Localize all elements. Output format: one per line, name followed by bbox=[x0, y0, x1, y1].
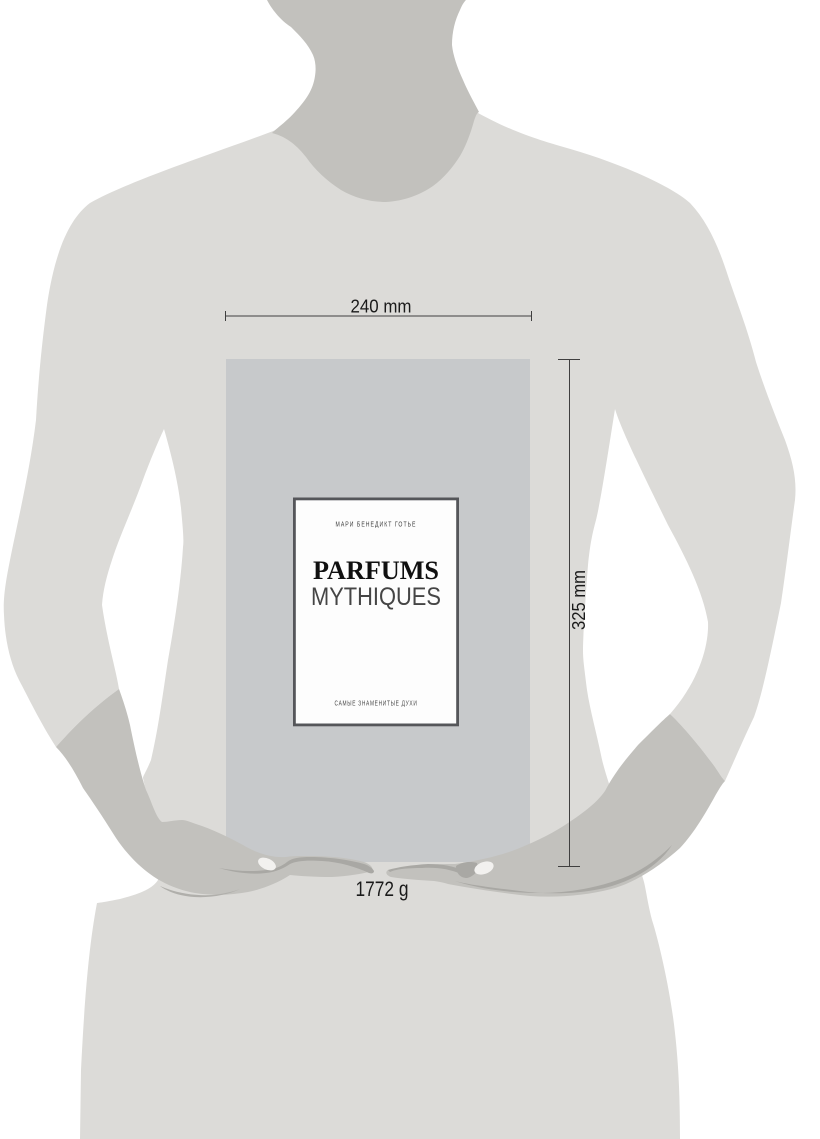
svg-text:САМЫЕ ЗНАМЕНИТЫЕ ДУХИ: САМЫЕ ЗНАМЕНИТЫЕ ДУХИ bbox=[335, 701, 418, 708]
svg-text:PARFUMS: PARFUMS bbox=[313, 556, 439, 585]
svg-text:1772 g: 1772 g bbox=[356, 878, 409, 901]
svg-text:МАРИ БЕНЕДИКТ ГОТЬЕ: МАРИ БЕНЕДИКТ ГОТЬЕ bbox=[336, 519, 417, 528]
svg-text:325 mm: 325 mm bbox=[569, 570, 589, 630]
svg-text:MYTHIQUES: MYTHIQUES bbox=[311, 582, 441, 611]
svg-text:240 mm: 240 mm bbox=[351, 297, 412, 317]
